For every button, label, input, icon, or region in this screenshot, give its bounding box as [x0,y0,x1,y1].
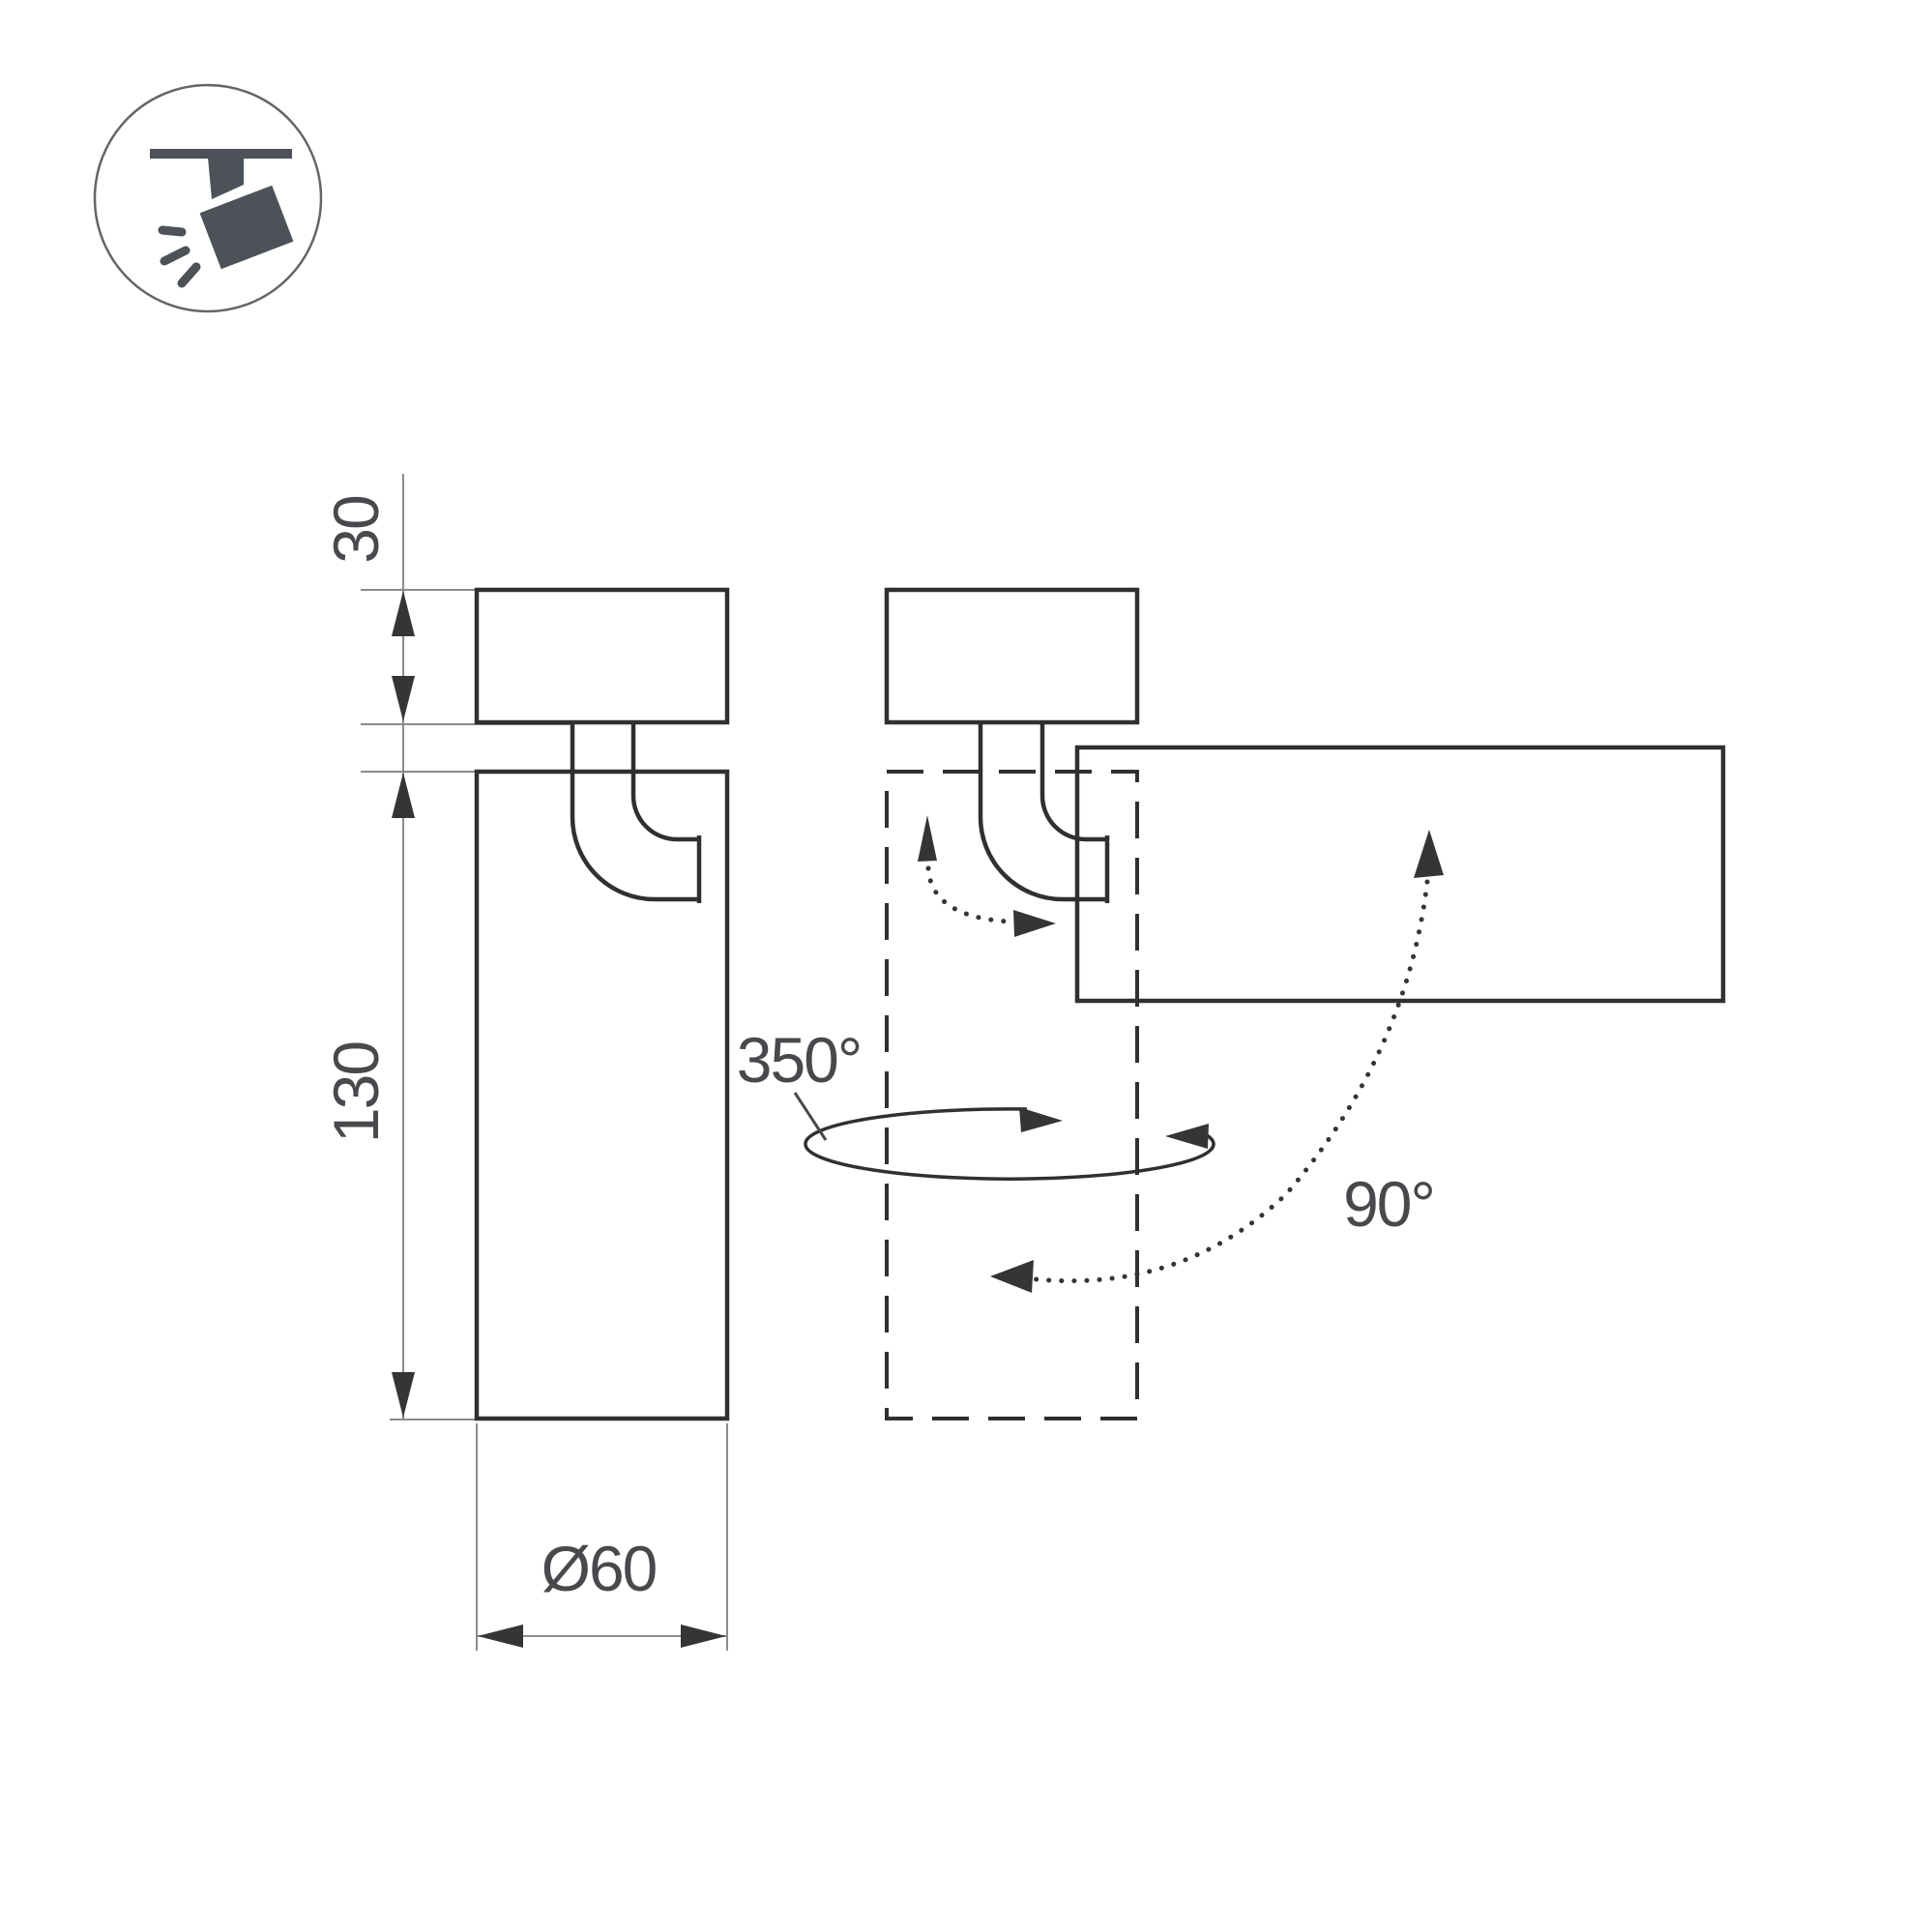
ceiling-track-spotlight-icon [95,85,321,311]
right-view: 350° 90° [737,590,1723,1419]
head-tilt-arc [918,815,1056,937]
tilt-arrow-right-icon [1013,910,1056,937]
swing-arrow-left-icon [990,1260,1034,1293]
mount-base [477,590,727,722]
pan-arrow-right-icon [1019,1107,1063,1132]
tilt-arrow-up-icon [918,815,937,862]
tilt-angle-label: 90° [1343,1168,1434,1240]
diameter-label: Ø60 [542,1533,657,1604]
icon-circle [95,85,321,311]
lamp-body-tilted [1077,747,1723,1001]
lamp-body [477,772,727,1419]
pan-angle-label: 350° [737,1024,862,1096]
ceiling-bar [150,149,292,159]
pan-rotation-ellipse [805,1107,1214,1179]
base-height-label: 30 [320,496,392,564]
body-height-label: 130 [320,1042,392,1143]
pan-arrow-left-icon [1165,1124,1209,1149]
spotlight-dimension-diagram: 30 130 Ø60 350° [0,0,1932,1932]
left-view: 30 130 Ø60 [320,474,727,1651]
mount-base [887,590,1137,722]
pan-angle-leader [795,1093,826,1140]
